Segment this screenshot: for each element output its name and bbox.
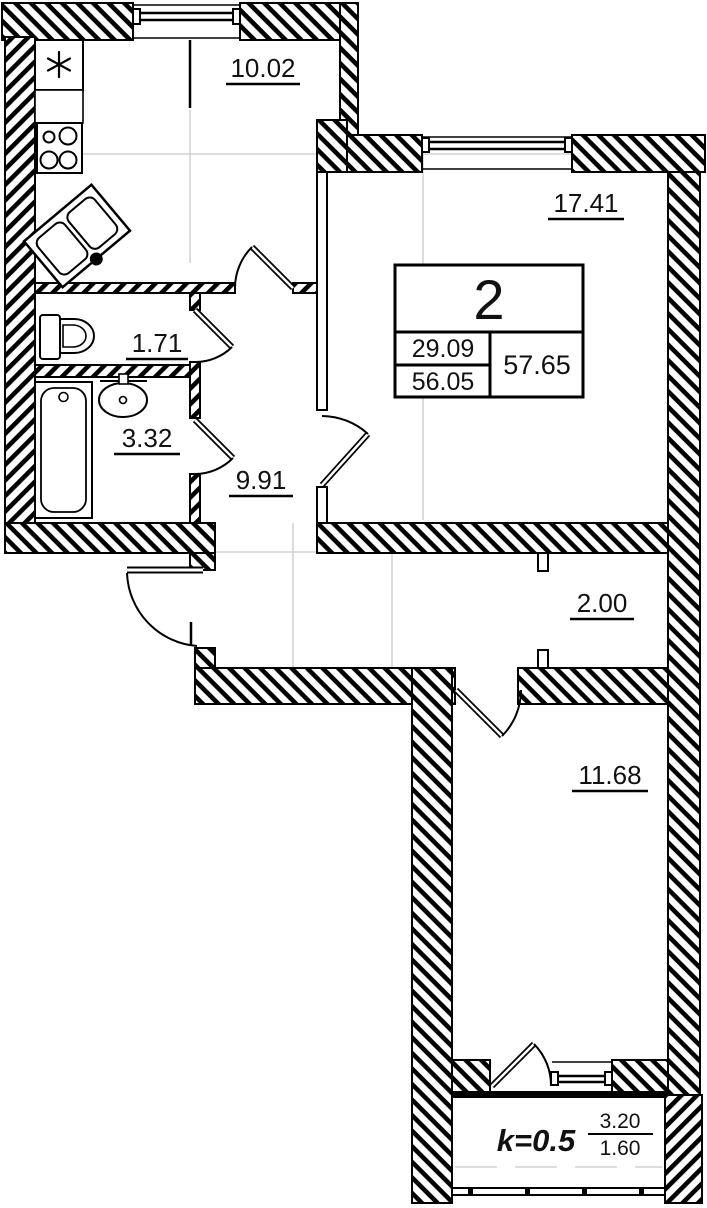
balcony-wall-face [452, 1091, 666, 1098]
wall-wc-c [190, 474, 200, 523]
wall-lr-left-lower [317, 487, 327, 523]
corridor-area-label: 2.00 [577, 588, 628, 618]
living-room-area-label: 17.41 [553, 188, 618, 218]
wall-left [5, 37, 35, 553]
entrance-door [127, 570, 203, 646]
balcony-slab-edge [452, 1188, 665, 1195]
wall-wc-b [190, 362, 200, 418]
wall-balcony-right [665, 1095, 702, 1203]
apartment-area: 56.05 [412, 368, 475, 396]
wall-corridor-bottom-right [518, 668, 668, 704]
wall-wc-a [190, 293, 200, 310]
balcony-coefficient-label: k=0.5 [497, 1123, 576, 1158]
wall-right [668, 172, 700, 1100]
bathroom-door [195, 420, 233, 474]
wall-lr-bottom [317, 523, 668, 553]
bedroom-door [456, 690, 521, 736]
wall-step [340, 3, 358, 137]
bathroom-fixtures [35, 315, 147, 518]
balcony-door [492, 1044, 551, 1086]
bathroom-area-label: 3.32 [122, 423, 173, 453]
fridge-icon [35, 40, 83, 90]
wall-lr-left-upper [317, 172, 327, 410]
balcony-labels: k=0.5 3.20 1.60 [497, 1110, 653, 1160]
balcony-area-reduced-label: 1.60 [600, 1137, 641, 1160]
wc-area-label: 1.71 [132, 328, 183, 358]
hallway-area-label: 9.91 [236, 465, 287, 495]
pilaster-bottom [538, 650, 548, 668]
kitchen-fixtures [24, 40, 190, 292]
wall-lr-top-right [572, 135, 705, 172]
kitchen-counter [35, 90, 83, 123]
kitchen-sink-icon [24, 185, 134, 292]
wall-bedroom-bottom-l [452, 1060, 490, 1093]
wall-kitchen-bottom-r [293, 283, 317, 293]
toilet-icon [40, 315, 94, 359]
wall-bedroom-left [412, 668, 452, 1203]
apartment-info-table: 2 29.09 56.05 57.65 [395, 265, 583, 397]
kitchen-window [133, 5, 240, 38]
floor-plan-drawing: 2 29.09 56.05 57.65 10.02 17.41 1.71 3.3… [0, 0, 707, 1208]
wall-step-block [317, 120, 347, 172]
kitchen-area-label: 10.02 [230, 53, 295, 83]
wall-top-left [2, 3, 133, 40]
wall-entry-jamb-bottom [195, 648, 215, 670]
floor-plan: 2 29.09 56.05 57.65 10.02 17.41 1.71 3.3… [0, 0, 707, 1208]
living-room-window [422, 137, 572, 169]
pilaster-top [538, 553, 548, 571]
wall-bedroom-bottom-r [612, 1060, 668, 1093]
kitchen-door [235, 247, 293, 288]
apartment-total-area: 57.65 [503, 350, 571, 380]
axis-lines [35, 110, 700, 1167]
bedroom-area-label: 11.68 [578, 760, 641, 790]
stove-icon [37, 123, 82, 173]
balcony-window [551, 1062, 612, 1085]
wall-wc-bath-divider [35, 365, 190, 377]
wc-door [195, 310, 232, 362]
balcony-area-full-label: 3.20 [600, 1110, 641, 1133]
wall-lr-top-left [347, 135, 422, 172]
wall-block-bottom [5, 523, 215, 553]
washbasin-icon [99, 374, 147, 417]
bathtub-icon [35, 382, 92, 518]
apartment-living-area: 29.09 [412, 335, 475, 363]
living-room-door [322, 416, 368, 485]
apartment-number: 2 [473, 268, 504, 331]
